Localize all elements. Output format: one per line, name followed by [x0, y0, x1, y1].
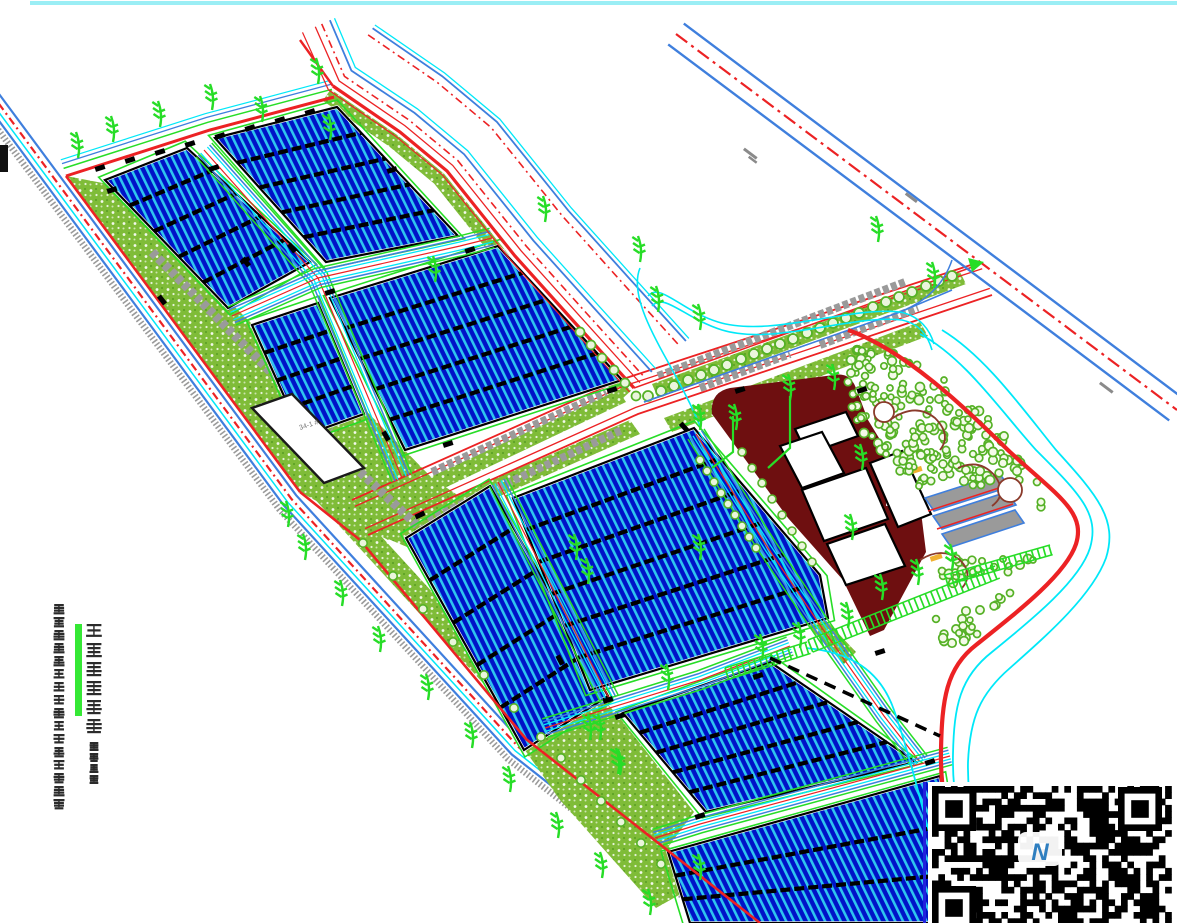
svg-text:N: N	[1031, 839, 1049, 866]
